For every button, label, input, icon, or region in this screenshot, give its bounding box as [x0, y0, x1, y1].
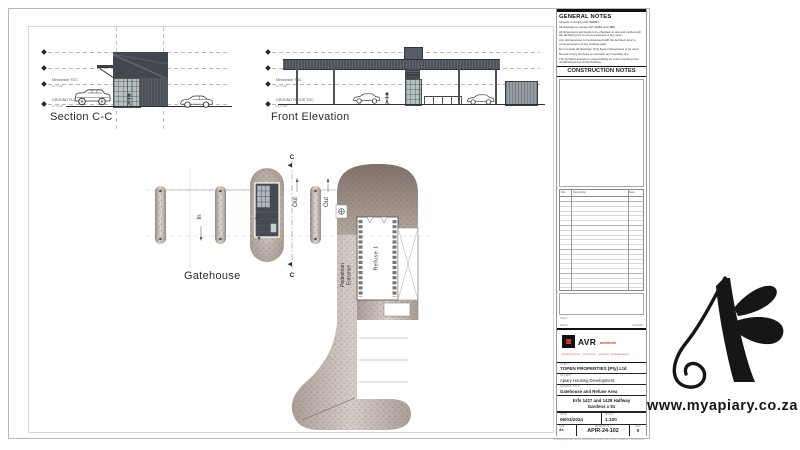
- project-row: PROJECT Apiary Housing Development: [557, 374, 646, 385]
- avr-logo-text: AVR: [578, 337, 596, 347]
- revision-col-divider: [628, 190, 629, 290]
- person-figure: [384, 92, 390, 105]
- address-row: Erfs 1427 and 1428 Halfway Gardens x 81: [557, 396, 646, 413]
- general-note: The Architect accepts no responsibility …: [559, 58, 644, 65]
- number-value: APIR-24-102: [579, 428, 627, 435]
- notes-box: [559, 293, 644, 315]
- gatehouse-plan-title: Gatehouse: [184, 270, 241, 282]
- bollard-icon: [219, 238, 222, 241]
- tower-glazing: [405, 79, 422, 106]
- copyright-footer: This drawing may not be reproduced witho…: [440, 438, 645, 441]
- in-arrow-icon: [200, 237, 203, 241]
- stipple-texture: [155, 186, 166, 244]
- section-wall-siding: [139, 78, 168, 106]
- project-value: Apiary Housing Development: [560, 378, 643, 383]
- guard-booth: [505, 81, 538, 106]
- drawing-row: DRAWING TITLE Gatehouse and Refuse Area: [557, 385, 646, 396]
- general-notes-list: All work to comply with NHBRC. All drawi…: [557, 21, 646, 66]
- boom-barrier: [424, 96, 462, 97]
- elevation-ground-label: GROUND FLOOR TOC: [276, 99, 314, 103]
- pedestrian-entrance-label-1: Pedestrian: [340, 263, 346, 287]
- in-lane-label: In: [196, 214, 203, 220]
- sedan-car: [179, 94, 215, 108]
- construction-notes-box: [559, 79, 644, 187]
- gatehouse-hatch: [271, 224, 277, 233]
- revision-rows: [560, 197, 643, 290]
- watermark-url: www.myapiary.co.za: [645, 398, 800, 414]
- drawn-label: Drawn: [560, 324, 568, 327]
- sedan-car: [352, 92, 382, 104]
- section-marker-bottom: C: [290, 272, 295, 279]
- out-arrow-icon: [296, 178, 299, 182]
- person-figure: [126, 93, 132, 106]
- bollard-icon: [219, 190, 222, 193]
- section-arrow-icon: [288, 163, 293, 167]
- section-arrow-icon: [288, 262, 293, 266]
- revision-table: Rev Description Date: [559, 189, 644, 291]
- avr-logo-suffix: architects: [600, 341, 616, 345]
- canopy-column: [296, 68, 298, 104]
- canopy-column: [333, 68, 335, 104]
- date-value: 06/03/2024: [560, 417, 598, 423]
- section-roof-mass: [113, 52, 168, 78]
- out-lane-label: Out: [323, 197, 330, 207]
- avr-logo-tagline: architecture · interiors · project manag…: [562, 353, 629, 356]
- checked-label: Checked: [632, 324, 643, 327]
- elevation-mezzanine-level: SL 3.400: [276, 85, 287, 88]
- refuse-room-label: Refuse 1: [374, 245, 380, 270]
- stipple-texture: [310, 186, 321, 244]
- drawing-value: Gatehouse and Refuse Area: [560, 389, 643, 394]
- front-elevation-title: Front Elevation: [271, 111, 349, 123]
- out-arrow-icon: [327, 178, 330, 182]
- canopy-column: [458, 68, 460, 104]
- description-col-header: Description: [572, 190, 628, 196]
- rev-value: 0: [632, 428, 644, 434]
- date-scale-row: DATE 06/03/2024 SCALE 1:100: [557, 413, 646, 424]
- sedan-car: [466, 93, 496, 105]
- general-notes-title: GENERAL NOTES: [557, 12, 646, 21]
- section-title: Section C-C: [50, 111, 113, 123]
- elevation-canopy: [283, 59, 500, 70]
- avr-logo-icon: [562, 335, 575, 348]
- client-value: TOPEN PROPERTIES (Pty) Ltd: [560, 366, 643, 372]
- barrier-post: [424, 96, 425, 104]
- date-cell: DATE 06/03/2024: [557, 413, 601, 423]
- title-block: AVR architects architecture · interiors …: [557, 328, 646, 436]
- bollard-icon: [159, 238, 162, 241]
- section-marker-top: C: [290, 154, 295, 161]
- elevation-ground-level: SL 0.000: [276, 105, 287, 108]
- construction-notes-title: CONSTRUCTION NOTES: [557, 66, 646, 77]
- barrier-post: [451, 96, 452, 104]
- in-lane-label: In: [254, 214, 261, 220]
- general-note: All drawings to comply with SABS and NBR…: [559, 26, 644, 29]
- general-note: Do not scale off drawings. Only figured …: [559, 48, 644, 51]
- avr-logo: AVR architects architecture · interiors …: [557, 330, 646, 363]
- suv-car: [72, 88, 113, 107]
- barrier-post: [461, 96, 462, 104]
- bollard-icon: [314, 238, 317, 241]
- drawing-number-row: SIZE A1 DRAWING No. APIR-24-102 REV 0: [557, 425, 646, 437]
- butterfly-logo-icon: [652, 272, 792, 394]
- barrier-post: [442, 96, 443, 104]
- general-note: All dimensions and levels to be checked …: [559, 31, 644, 38]
- plan-store-box: [384, 303, 410, 316]
- size-value: A1: [559, 428, 574, 433]
- notes-panel: GENERAL NOTES All work to comply with NH…: [556, 9, 647, 436]
- elevation-ground-line: [278, 104, 545, 105]
- rev-cell: REV 0: [629, 425, 646, 437]
- section-mezzanine-label: Mezzanine TOC: [52, 79, 78, 83]
- address-line-2: Gardens x 81: [559, 404, 644, 410]
- scale-value: 1:100: [605, 417, 643, 423]
- revision-table-header: Rev Description Date: [560, 190, 643, 197]
- bollard-icon: [159, 190, 162, 193]
- out-lane-label: Out: [292, 197, 299, 207]
- general-note: No part of any structure to encroach any…: [559, 53, 644, 56]
- general-note: All work to comply with NHBRC.: [559, 21, 644, 24]
- tower-louvre: [405, 68, 420, 79]
- pedestrian-entrance-label-2: Entrance: [347, 265, 353, 285]
- date-col-header: Date: [628, 190, 643, 196]
- architectural-sheet-screenshot: Mezzanine TOC SL 3.400 GROUND FLOOR TOC …: [0, 0, 800, 450]
- revision-col-divider: [571, 190, 572, 290]
- general-note: Any discrepancies to be discussed with t…: [559, 39, 644, 46]
- section-mezzanine-level: SL 3.400: [52, 85, 63, 88]
- stipple-texture: [215, 186, 226, 244]
- section-ground-level: SL 0.000: [52, 105, 63, 108]
- gatehouse-plan: Refuse 1: [140, 148, 460, 440]
- bollard-icon: [314, 190, 317, 193]
- scale-cell: SCALE 1:100: [601, 413, 646, 423]
- client-row: CLIENT TOPEN PROPERTIES (Pty) Ltd: [557, 363, 646, 374]
- barrier-post: [433, 96, 434, 104]
- number-cell: DRAWING No. APIR-24-102: [577, 425, 629, 437]
- size-cell: SIZE A1: [557, 425, 577, 437]
